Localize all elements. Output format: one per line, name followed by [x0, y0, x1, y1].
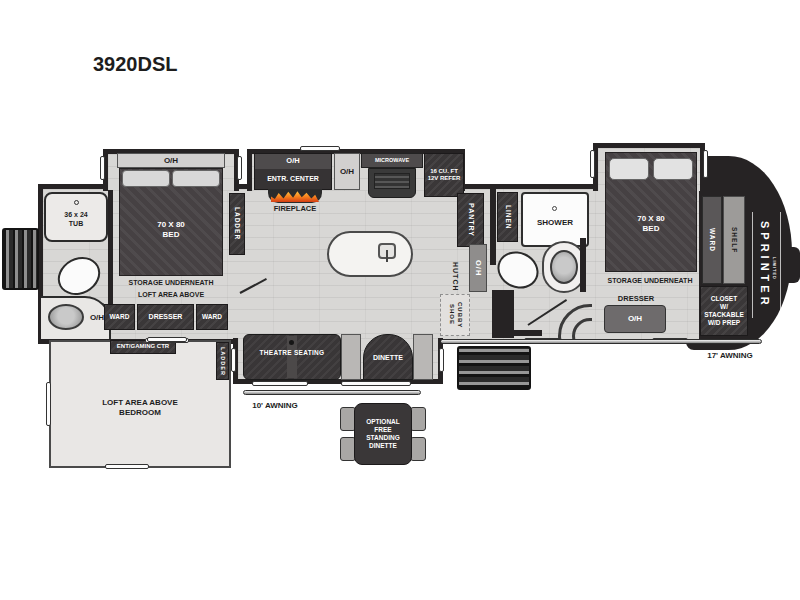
window — [237, 156, 242, 180]
pantry-label: PANTRY — [457, 193, 484, 247]
front-entry-steps — [2, 228, 39, 290]
brand-rule-right — [780, 212, 781, 318]
floorplan-canvas: 3920DSL SPRINTER LIMITED 17' AWNING 10' … — [0, 0, 800, 600]
linen-label: LINEN — [497, 192, 518, 242]
microwave-label: MICROWAVE — [361, 153, 423, 168]
dinette-chair — [410, 407, 426, 431]
dinette-chair — [410, 437, 426, 461]
tub-drain — [74, 200, 79, 205]
front-bed-label: 70 X 80 BED — [129, 218, 213, 242]
window — [300, 146, 340, 151]
rear-storage-label: STORAGE UNDERNEATH — [585, 276, 715, 286]
brand-rule-left — [752, 212, 753, 318]
main-entry-steps — [457, 346, 531, 390]
dinette-label: DINETTE — [363, 352, 413, 364]
front-bed-pillow-left — [122, 170, 170, 187]
window — [100, 156, 105, 180]
bath-sink-mid — [550, 250, 578, 284]
midbath-bottom-wall — [496, 330, 542, 336]
bath-sink-front — [48, 304, 84, 330]
rear-bed-label: 70 X 80 BED — [609, 212, 693, 236]
rear-bed-pillow-right — [653, 158, 693, 180]
optional-dinette-group: OPTIONAL FREE STANDING DINETTE — [340, 403, 426, 467]
dinette-bench-left — [341, 334, 361, 380]
entr-oh-label: O/H — [254, 153, 332, 169]
dinette-bench-right — [413, 334, 433, 380]
tub-label: 36 x 24 TUB — [46, 206, 106, 234]
awning-17ft-bar — [440, 339, 762, 344]
window — [703, 150, 708, 178]
front-ladder-label: LADDER — [229, 193, 245, 255]
fireplace-label: FIREPLACE — [252, 204, 338, 214]
shower-drain — [552, 206, 557, 211]
closet-wd-prep-label: CLOSET W/ STACKABLE W/D PREP — [700, 286, 748, 336]
brand-series: LIMITED — [770, 238, 778, 298]
shoe-cubby-label: SHOE CUBBY — [440, 294, 470, 336]
hutch-oh-label: O/H — [469, 244, 487, 292]
island-faucet-icon — [386, 250, 388, 262]
shower-label: SHOWER — [523, 216, 587, 230]
theatre-label: THEATRE SEATING — [243, 347, 341, 359]
window — [46, 382, 51, 426]
window — [105, 464, 149, 469]
window — [590, 150, 595, 178]
rear-dresser-oh-label: O/H — [604, 305, 666, 333]
loft-ent-gaming-label: ENT/GAMING CTR — [110, 340, 176, 354]
window — [252, 381, 308, 386]
hitch-pin-box — [786, 247, 800, 283]
midbath-left-wall — [490, 189, 496, 265]
front-loft-label: LOFT AREA ABOVE — [96, 290, 246, 300]
front-bed-oh-label: O/H — [117, 153, 225, 168]
awning-17ft-label: 17' AWNING — [695, 350, 765, 362]
kitchen-island — [327, 231, 413, 277]
loft-area-label: LOFT AREA ABOVE BEDROOM — [59, 396, 221, 420]
front-dresser-label: DRESSER — [137, 304, 194, 330]
rear-shelf-label: SHELF — [723, 196, 745, 284]
loft-ladder-label: LADDER — [216, 342, 229, 380]
front-bed-pillow-right — [172, 170, 220, 187]
window — [439, 348, 444, 372]
kitchen-oh-label: O/H — [334, 153, 360, 190]
model-title: 3920DSL — [93, 52, 213, 76]
window — [341, 381, 411, 386]
front-ward-right-label: WARD — [196, 304, 228, 330]
refrigerator-label: 16 CU. FT 12V REFER — [424, 153, 464, 197]
optional-dinette-label: OPTIONAL FREE STANDING DINETTE — [354, 403, 412, 465]
front-ward-left-label: WARD — [104, 304, 135, 330]
rear-bed-pillow-left — [609, 158, 649, 180]
awning-10ft-bar — [243, 390, 421, 395]
window — [231, 348, 236, 372]
rear-ward-label: WARD — [702, 196, 722, 284]
entr-center-label: ENTR. CENTER — [254, 169, 332, 189]
theatre-cupholder — [289, 340, 294, 345]
awning-10ft-label: 10' AWNING — [243, 400, 307, 412]
range-grate — [374, 173, 410, 189]
front-storage-label: STORAGE UNDERNEATH — [96, 278, 246, 288]
rear-dresser-label: DRESSER — [600, 294, 672, 304]
